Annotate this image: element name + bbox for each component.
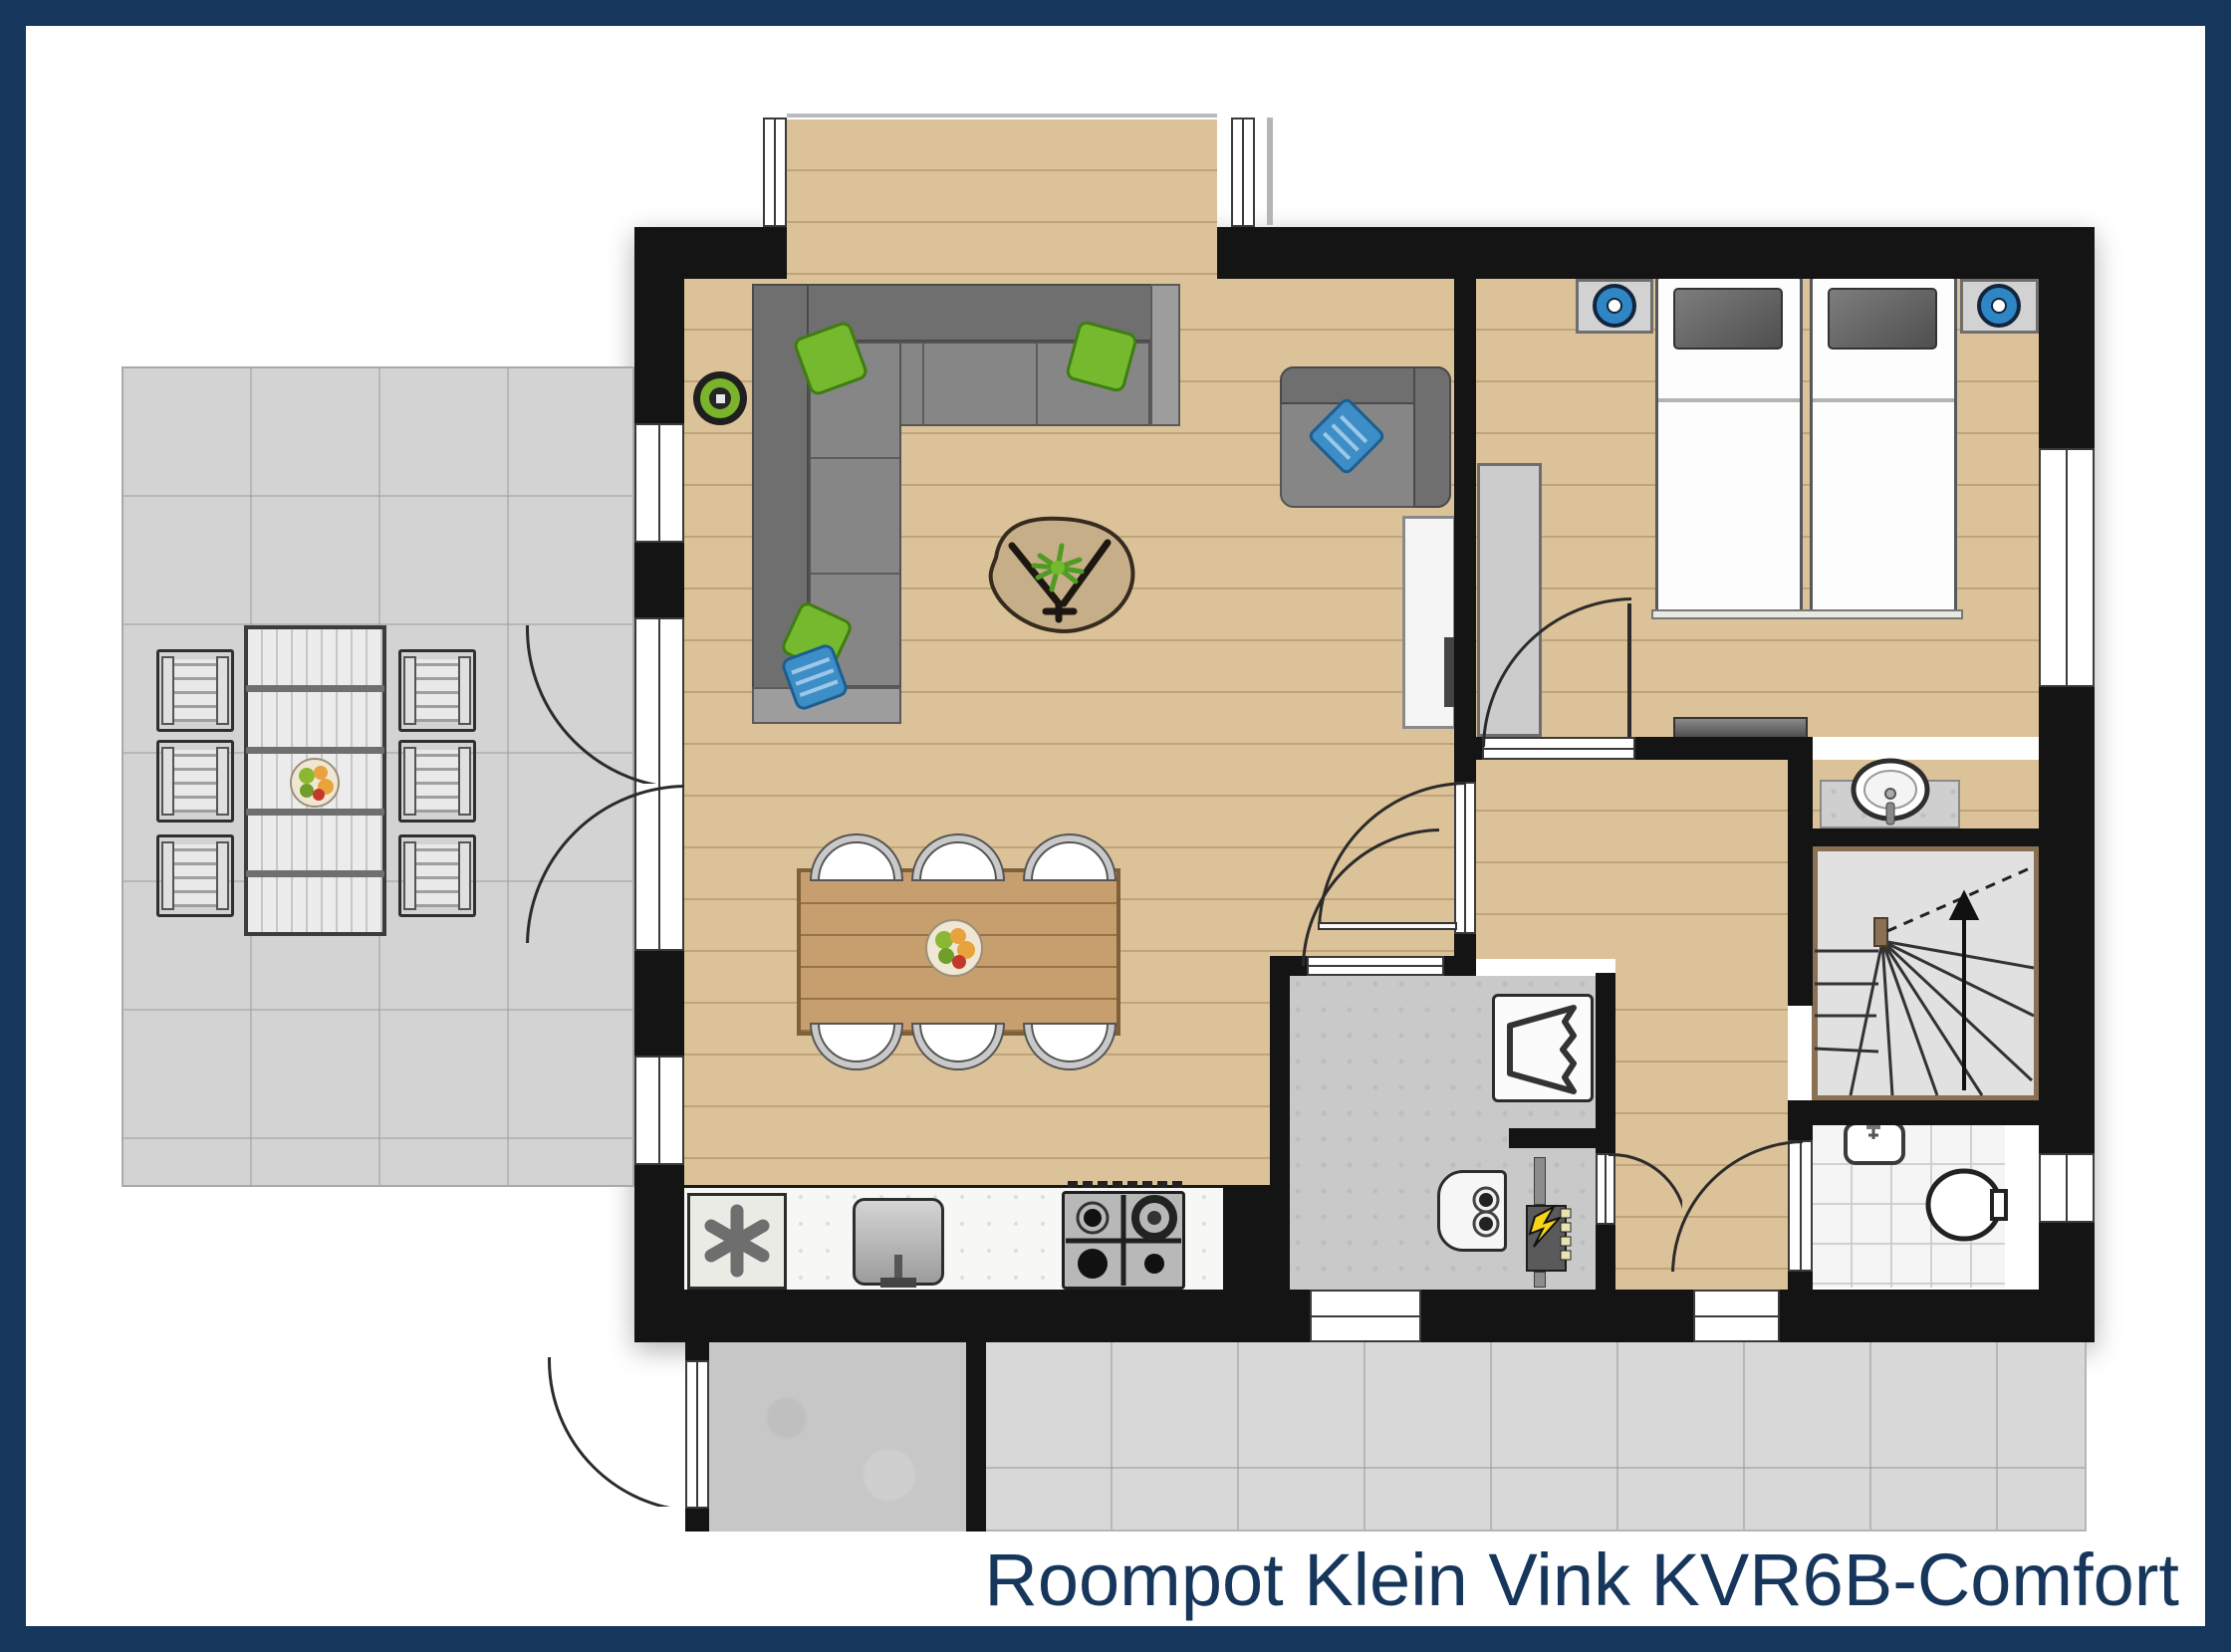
boiler bbox=[1437, 1170, 1507, 1252]
wall-porch-stub bbox=[966, 1342, 986, 1532]
wall-entry-post-bottom bbox=[685, 1509, 709, 1532]
bay-window-shadow-line bbox=[1267, 118, 1273, 225]
toilet-floor bbox=[1813, 1125, 2005, 1288]
freezer bbox=[687, 1193, 787, 1290]
corner-sofa-seats-left bbox=[809, 342, 901, 687]
wall-meter-east-b bbox=[1596, 1225, 1615, 1290]
entry-door-frame bbox=[685, 1360, 709, 1509]
bedroom-door-threshold bbox=[1482, 737, 1635, 760]
bay-window-top-line bbox=[787, 114, 1217, 118]
window-west-dining bbox=[634, 1056, 684, 1165]
wall-niche-south bbox=[1803, 828, 2039, 846]
window-east-bedroom bbox=[2039, 448, 2095, 687]
nightstand-right bbox=[1960, 279, 2039, 334]
bay-window-right bbox=[1231, 118, 1255, 227]
corner-sofa-chaise-end bbox=[752, 687, 901, 724]
outdoor-chair-2 bbox=[156, 740, 234, 823]
entry-porch-floor bbox=[709, 1342, 966, 1532]
corridor-floor bbox=[1615, 959, 1788, 1290]
nightstand-left bbox=[1576, 279, 1653, 334]
toilet-door-frame bbox=[1788, 1140, 1813, 1272]
bay-window-left bbox=[763, 118, 787, 227]
gas-hob bbox=[1062, 1191, 1185, 1290]
bedroom-tv-shelf bbox=[1673, 717, 1808, 739]
wall-south-left bbox=[634, 1290, 1310, 1342]
corner-sofa-back-top bbox=[752, 284, 1180, 342]
terrace-french-door-frame bbox=[634, 617, 684, 951]
wall-living-bedroom bbox=[1454, 279, 1476, 782]
window-south-corridor bbox=[1693, 1290, 1780, 1342]
wall-stairs-west bbox=[1788, 737, 1813, 1006]
outdoor-chair-5 bbox=[398, 740, 476, 823]
outdoor-table-divider-2 bbox=[246, 747, 384, 754]
hall-door-frame bbox=[1454, 782, 1476, 934]
fuse-box-pipe-top bbox=[1534, 1157, 1546, 1205]
wall-top-right bbox=[1217, 227, 2095, 279]
wall-west-2 bbox=[634, 543, 684, 617]
duvet-fold-left bbox=[1658, 398, 1800, 402]
wall-utility-north-a bbox=[1270, 956, 1307, 976]
utility-door-threshold bbox=[1307, 956, 1444, 976]
wall-toilet-north bbox=[1788, 1100, 2039, 1125]
wall-top-left bbox=[634, 227, 787, 279]
wall-stairs-west-lowest bbox=[1788, 1272, 1813, 1290]
fuse-box bbox=[1526, 1205, 1567, 1272]
washing-machine bbox=[1492, 994, 1594, 1102]
entry-door-arc bbox=[548, 1357, 697, 1507]
duct-shaft bbox=[2005, 1125, 2039, 1288]
corner-sofa-armrest bbox=[1150, 284, 1180, 426]
wall-meter-stub bbox=[1509, 1128, 1615, 1148]
corner-sofa-back-left bbox=[752, 284, 809, 722]
window-south-utility bbox=[1310, 1290, 1421, 1342]
floor-plan-canvas: Roompot Klein Vink KVR6B-Comfort bbox=[0, 0, 2231, 1652]
window-west-living bbox=[634, 423, 684, 543]
outdoor-table-divider-4 bbox=[246, 870, 384, 877]
bay-window-floor bbox=[787, 119, 1217, 279]
staircase-floor bbox=[1813, 846, 2039, 1100]
outdoor-chair-1 bbox=[156, 649, 234, 732]
pillow-left bbox=[1673, 288, 1783, 350]
sink-faucet-handle bbox=[880, 1278, 916, 1288]
hallway-floor bbox=[1476, 760, 1788, 959]
wall-entry-post-top bbox=[685, 1342, 709, 1360]
outdoor-chair-3 bbox=[156, 834, 234, 917]
fuse-box-pipe-bottom bbox=[1534, 1272, 1546, 1288]
duvet-fold-right bbox=[1813, 398, 1954, 402]
wall-west-3 bbox=[634, 951, 684, 1056]
washbasin-counter bbox=[1820, 780, 1960, 828]
outdoor-chair-4 bbox=[398, 649, 476, 732]
patio-floor bbox=[986, 1342, 2087, 1532]
pillow-right bbox=[1828, 288, 1937, 350]
wall-east-2 bbox=[2039, 687, 2095, 1153]
wall-kitchen-end bbox=[1223, 1185, 1290, 1290]
wall-west-1 bbox=[634, 279, 684, 423]
outdoor-table-divider-1 bbox=[246, 685, 384, 692]
wall-east-1 bbox=[2039, 279, 2095, 448]
outdoor-table bbox=[244, 625, 386, 936]
wall-east-3 bbox=[2039, 1223, 2095, 1342]
tv-flatscreen bbox=[1444, 637, 1454, 707]
outdoor-chair-6 bbox=[398, 834, 476, 917]
wall-bedroom-south-east bbox=[1635, 737, 1796, 760]
window-east-toilet bbox=[2039, 1153, 2095, 1223]
armchair-back-right bbox=[1413, 366, 1451, 508]
wardrobe bbox=[1477, 463, 1542, 737]
dining-table bbox=[797, 868, 1120, 1036]
plan-title: Roompot Klein Vink KVR6B-Comfort bbox=[984, 1537, 2179, 1622]
hall-door-leaf bbox=[1318, 922, 1457, 930]
wall-utility-north-b bbox=[1444, 956, 1476, 976]
wall-south-mid bbox=[1421, 1290, 1693, 1342]
outdoor-table-divider-3 bbox=[246, 809, 384, 816]
bed-foot-rail bbox=[1651, 609, 1963, 619]
wall-utility-east bbox=[1596, 973, 1615, 1148]
meter-door-frame bbox=[1596, 1153, 1615, 1225]
